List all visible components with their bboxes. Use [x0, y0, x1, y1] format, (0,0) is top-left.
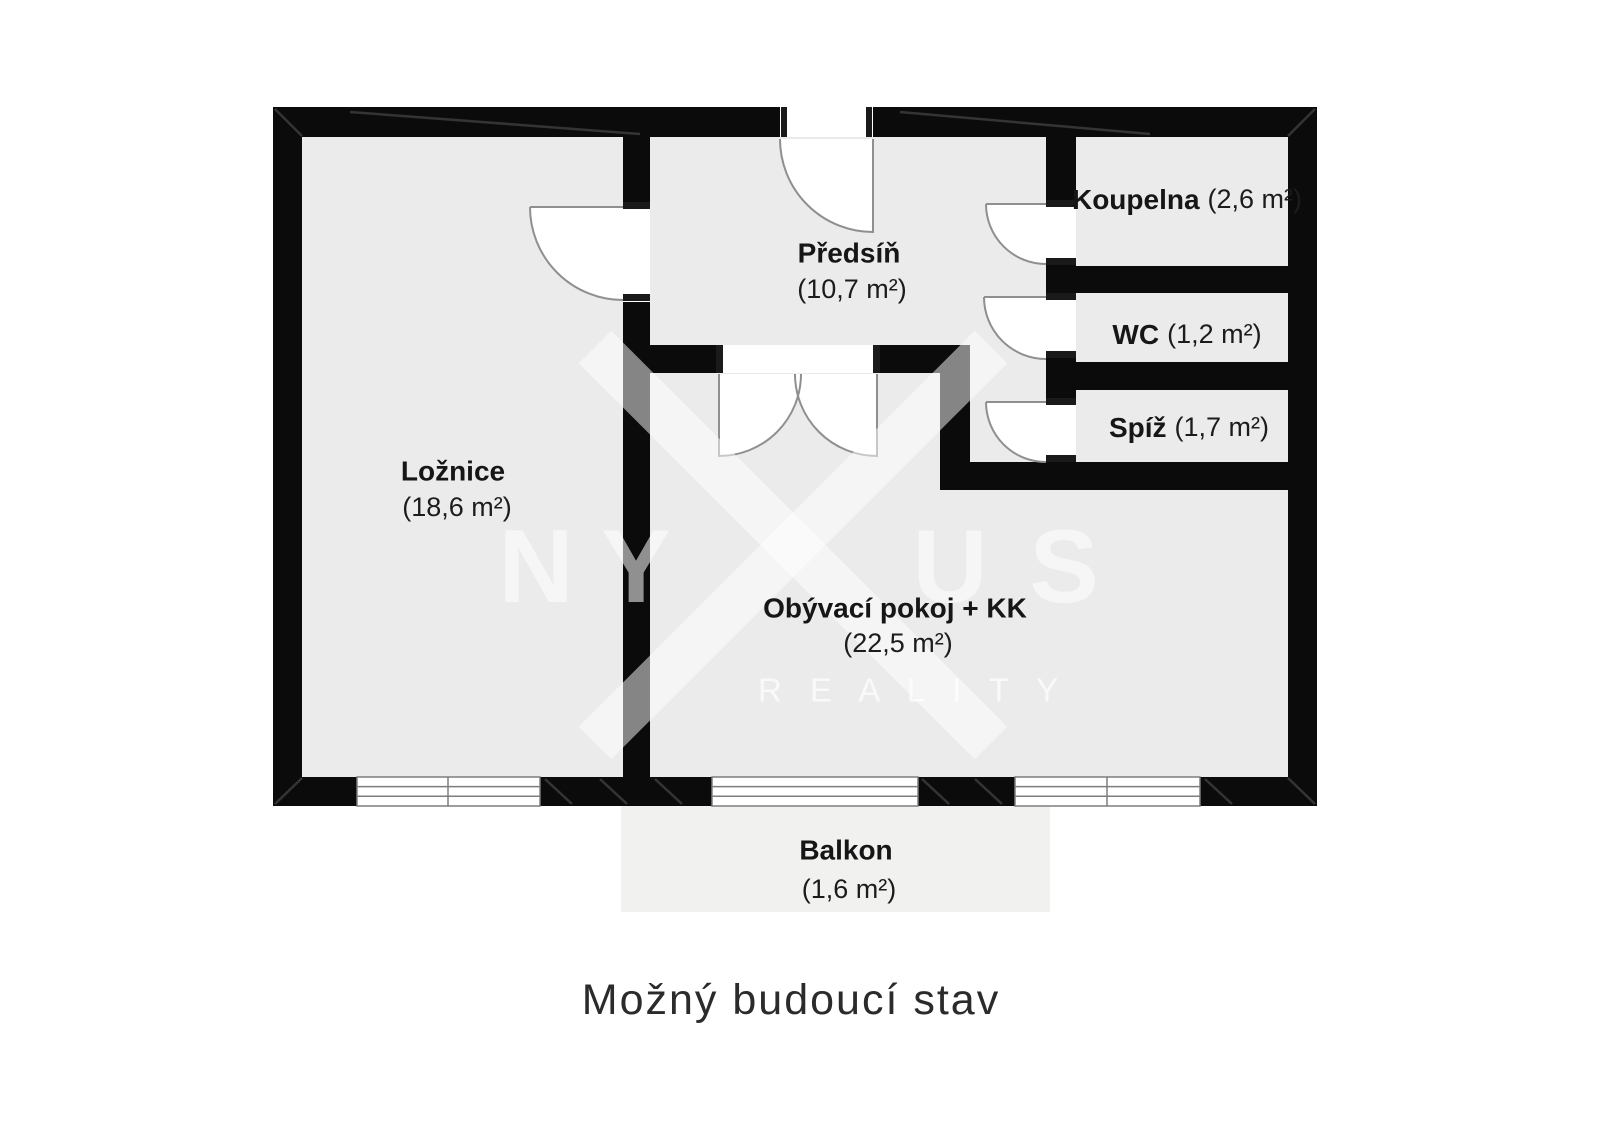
- wc-area: (1,2 m²): [1167, 319, 1262, 349]
- spiz-area: (1,7 m²): [1175, 412, 1270, 442]
- koupelna-area: (2,6 m²): [1208, 184, 1303, 214]
- koupelna-name: Koupelna: [1072, 184, 1200, 215]
- wall-bedroom-divider-top: [623, 137, 650, 202]
- obyvaci-area: (22,5 m²): [843, 628, 953, 658]
- label-koupelna: Koupelna(2,6 m²): [1072, 184, 1302, 215]
- spiz-line: Spíž(1,7 m²): [1109, 412, 1269, 443]
- spiz-name: Spíž: [1109, 412, 1167, 443]
- windows: [357, 777, 1200, 806]
- window-living-left: [712, 777, 918, 806]
- predsin-area: (10,7 m²): [797, 274, 907, 304]
- balkon-area: (1,6 m²): [802, 874, 897, 904]
- wall-hall-stub-right: [880, 345, 940, 373]
- window-living-right: [1015, 777, 1200, 806]
- floor-plan-drawing: N Y U S R E A L I T Y Ložnice (18,6 m²) …: [0, 0, 1599, 1130]
- wall-hall-stub-left: [650, 345, 716, 373]
- watermark-letter-s: S: [1029, 509, 1098, 625]
- obyvaci-name: Obývací pokoj + KK: [763, 593, 1027, 624]
- label-wc: WC(1,2 m²): [1112, 319, 1261, 350]
- wall-wc-pantry-divider: [1046, 362, 1317, 390]
- wall-bath-wc-divider: [1046, 266, 1317, 293]
- wall-bottom-1: [273, 777, 357, 806]
- watermark-letter-n: N: [498, 509, 573, 625]
- wall-below-pantry: [940, 462, 1317, 490]
- plan-caption: Možný budoucí stav: [582, 976, 1000, 1024]
- wall-left: [273, 107, 302, 806]
- loznice-name: Ložnice: [401, 456, 505, 487]
- label-spiz: Spíž(1,7 m²): [1109, 412, 1269, 443]
- watermark-letter-y: Y: [601, 509, 670, 625]
- wc-line: WC(1,2 m²): [1112, 319, 1261, 350]
- window-bedroom: [357, 777, 540, 806]
- predsin-name: Předsíň: [798, 238, 901, 269]
- balkon-name: Balkon: [799, 835, 892, 866]
- wc-name: WC: [1112, 319, 1159, 350]
- koupelna-line: Koupelna(2,6 m²): [1072, 184, 1302, 215]
- floor-plan-page: N Y U S R E A L I T Y Ložnice (18,6 m²) …: [0, 0, 1599, 1130]
- loznice-area: (18,6 m²): [402, 492, 512, 522]
- wall-top-left: [273, 107, 780, 137]
- wall-top-right: [873, 107, 1317, 137]
